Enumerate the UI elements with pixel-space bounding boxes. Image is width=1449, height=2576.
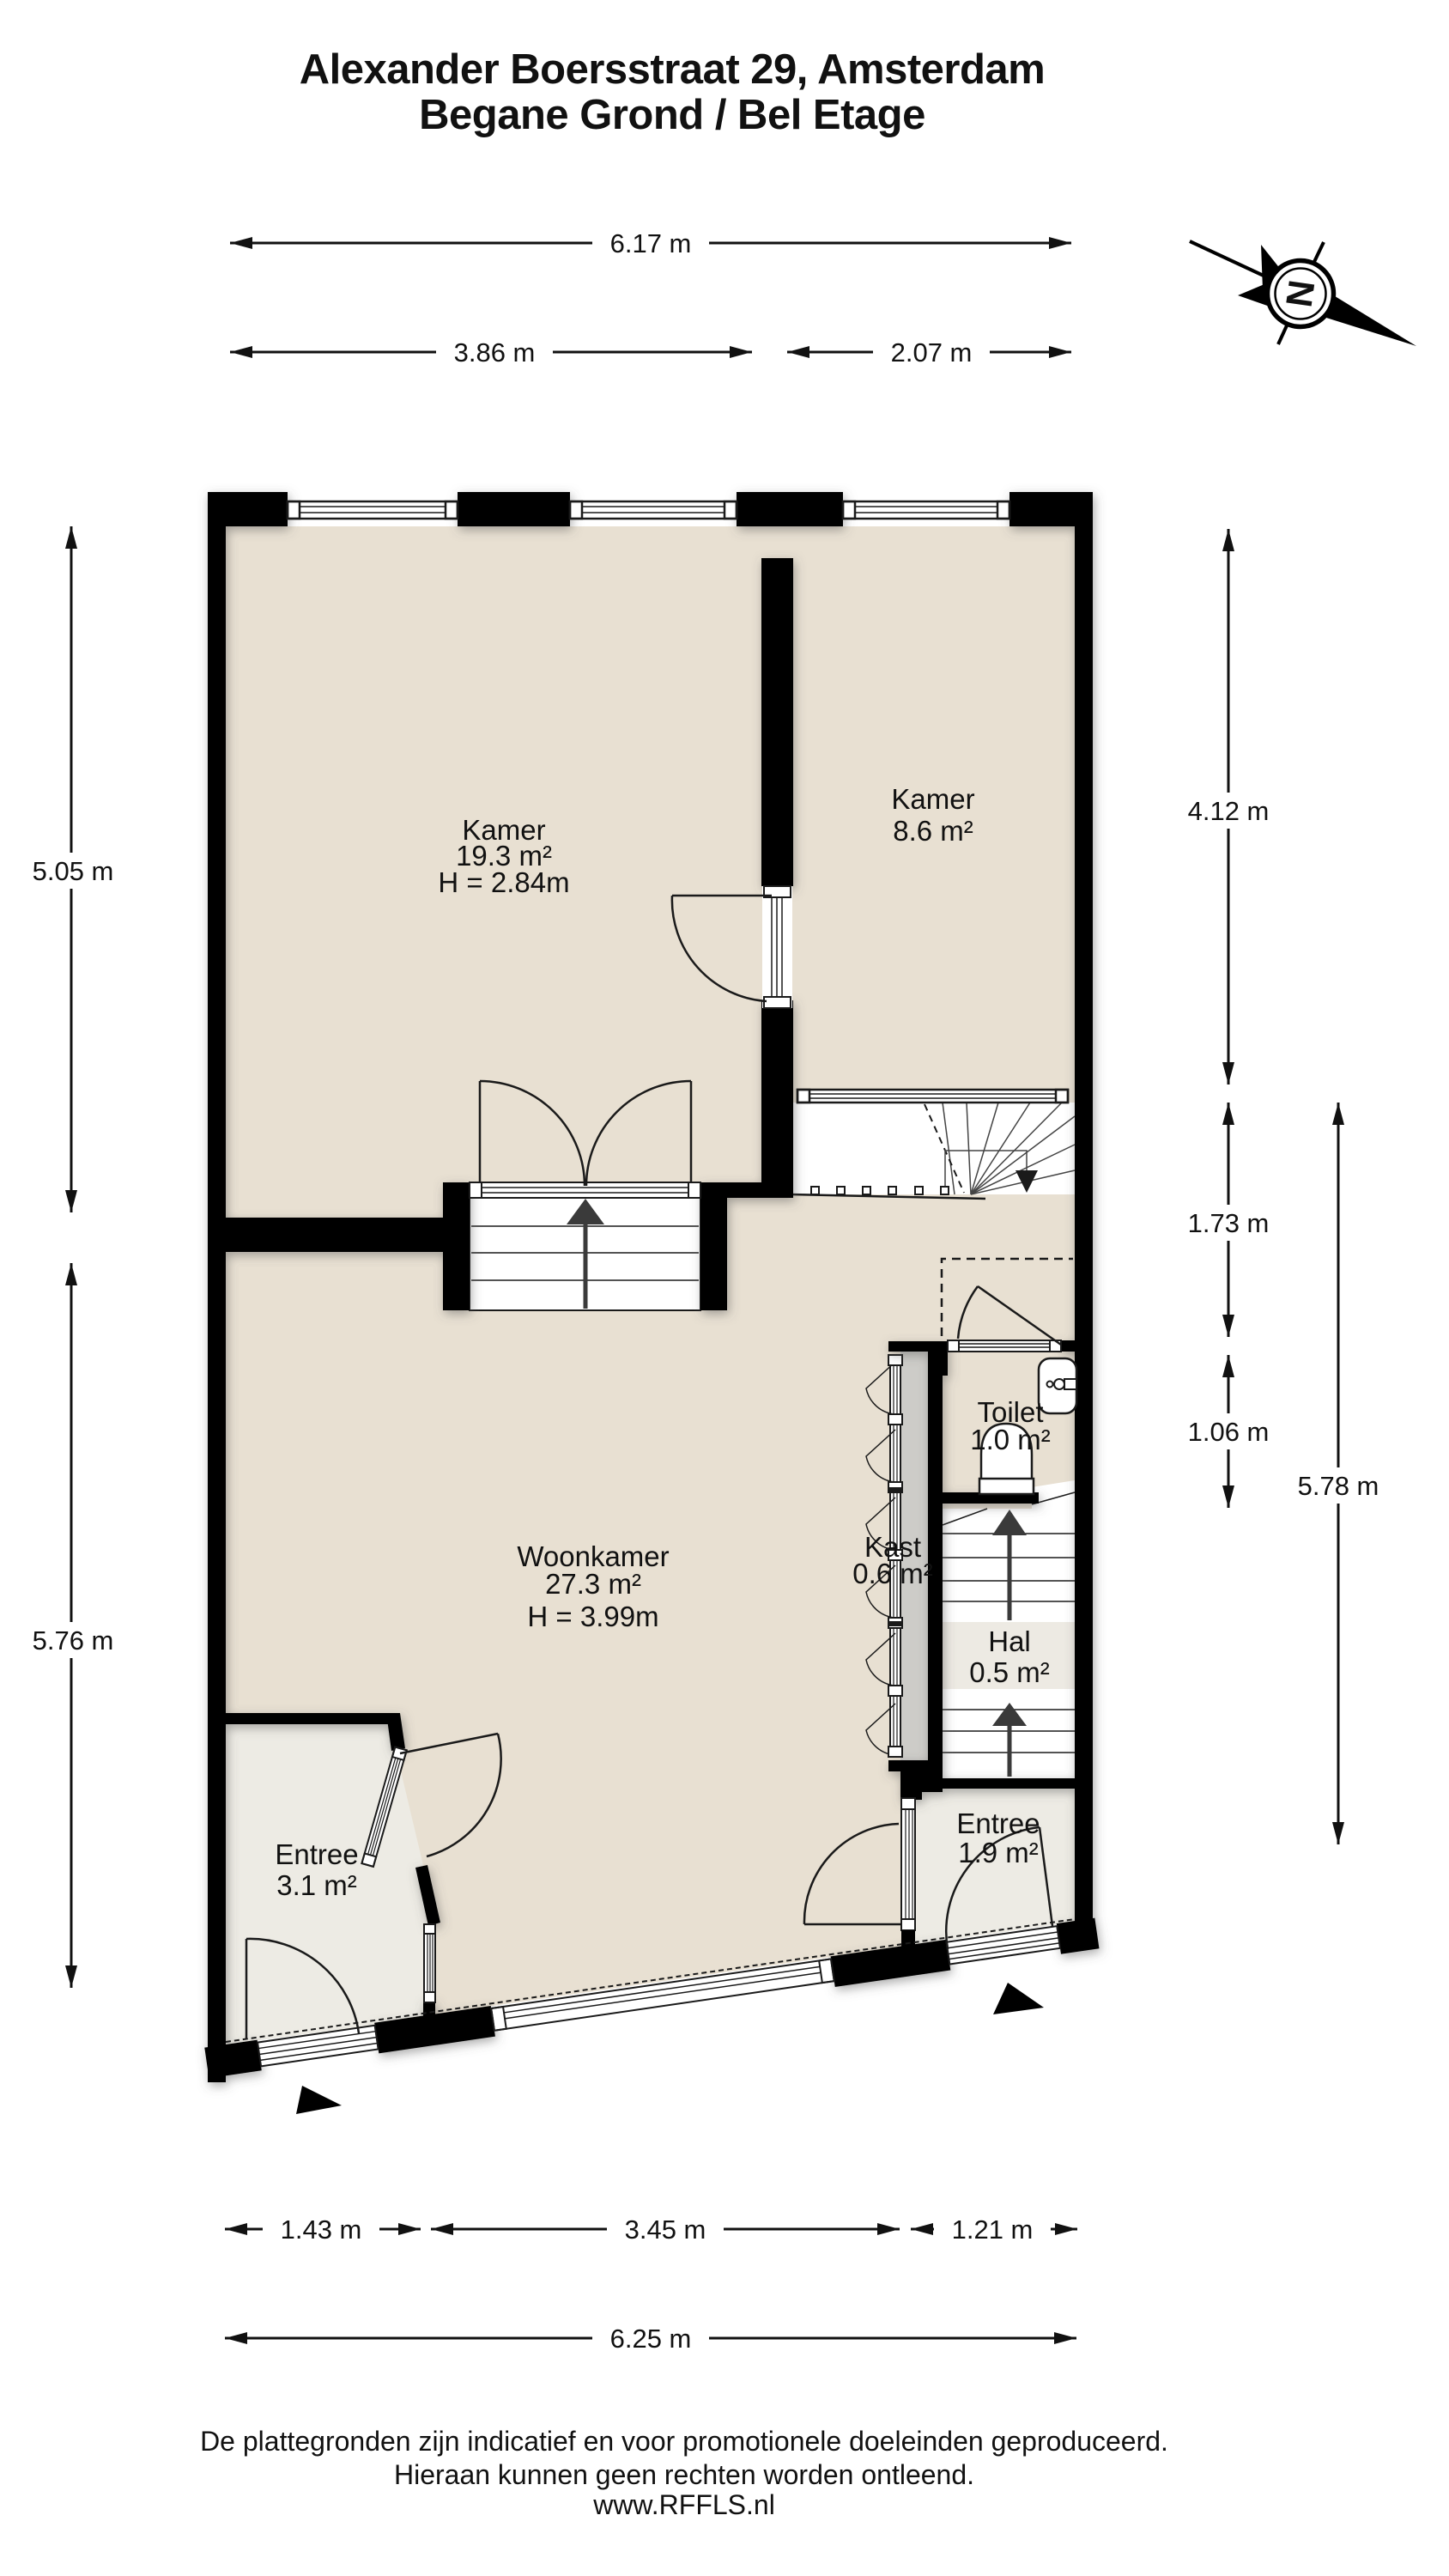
svg-text:6.17 m: 6.17 m bbox=[610, 228, 692, 258]
svg-text:H = 3.99m: H = 3.99m bbox=[527, 1601, 658, 1632]
svg-text:Entree: Entree bbox=[956, 1807, 1040, 1839]
svg-text:1.0 m²: 1.0 m² bbox=[970, 1424, 1051, 1455]
svg-text:0.5 m²: 0.5 m² bbox=[969, 1656, 1050, 1688]
svg-text:1.21 m: 1.21 m bbox=[952, 2215, 1034, 2245]
svg-text:Kamer: Kamer bbox=[891, 783, 974, 815]
svg-text:6.25 m: 6.25 m bbox=[610, 2324, 692, 2354]
svg-text:1.73 m: 1.73 m bbox=[1188, 1208, 1270, 1238]
svg-text:3.1 m²: 3.1 m² bbox=[276, 1869, 357, 1901]
svg-text:5.76 m: 5.76 m bbox=[33, 1625, 114, 1656]
svg-text:27.3 m²: 27.3 m² bbox=[545, 1568, 641, 1600]
svg-text:Hal: Hal bbox=[988, 1625, 1031, 1657]
svg-text:H = 2.84m: H = 2.84m bbox=[438, 866, 569, 898]
svg-text:4.12 m: 4.12 m bbox=[1188, 796, 1270, 826]
svg-text:5.05 m: 5.05 m bbox=[33, 856, 114, 886]
svg-text:2.07 m: 2.07 m bbox=[891, 337, 973, 368]
svg-text:0.6 m²: 0.6 m² bbox=[852, 1558, 933, 1589]
svg-text:3.45 m: 3.45 m bbox=[625, 2215, 706, 2245]
svg-text:5.78 m: 5.78 m bbox=[1298, 1471, 1379, 1501]
svg-text:1.9 m²: 1.9 m² bbox=[958, 1837, 1039, 1868]
svg-text:www.RFFLS.nl: www.RFFLS.nl bbox=[592, 2489, 775, 2520]
svg-text:3.86 m: 3.86 m bbox=[454, 337, 536, 368]
svg-text:Alexander Boersstraat 29, Amst: Alexander Boersstraat 29, Amsterdam bbox=[300, 46, 1046, 93]
svg-text:N: N bbox=[1277, 277, 1322, 309]
svg-text:De plattegronden zijn indicati: De plattegronden zijn indicatief en voor… bbox=[200, 2426, 1168, 2457]
svg-text:8.6 m²: 8.6 m² bbox=[893, 815, 973, 847]
svg-text:1.43 m: 1.43 m bbox=[281, 2215, 362, 2245]
svg-text:1.06 m: 1.06 m bbox=[1188, 1417, 1270, 1447]
svg-text:Entree: Entree bbox=[275, 1838, 358, 1870]
svg-text:Begane Grond / Bel Etage: Begane Grond / Bel Etage bbox=[419, 92, 925, 138]
svg-text:Hieraan kunnen geen rechten wo: Hieraan kunnen geen rechten worden ontle… bbox=[394, 2459, 974, 2490]
